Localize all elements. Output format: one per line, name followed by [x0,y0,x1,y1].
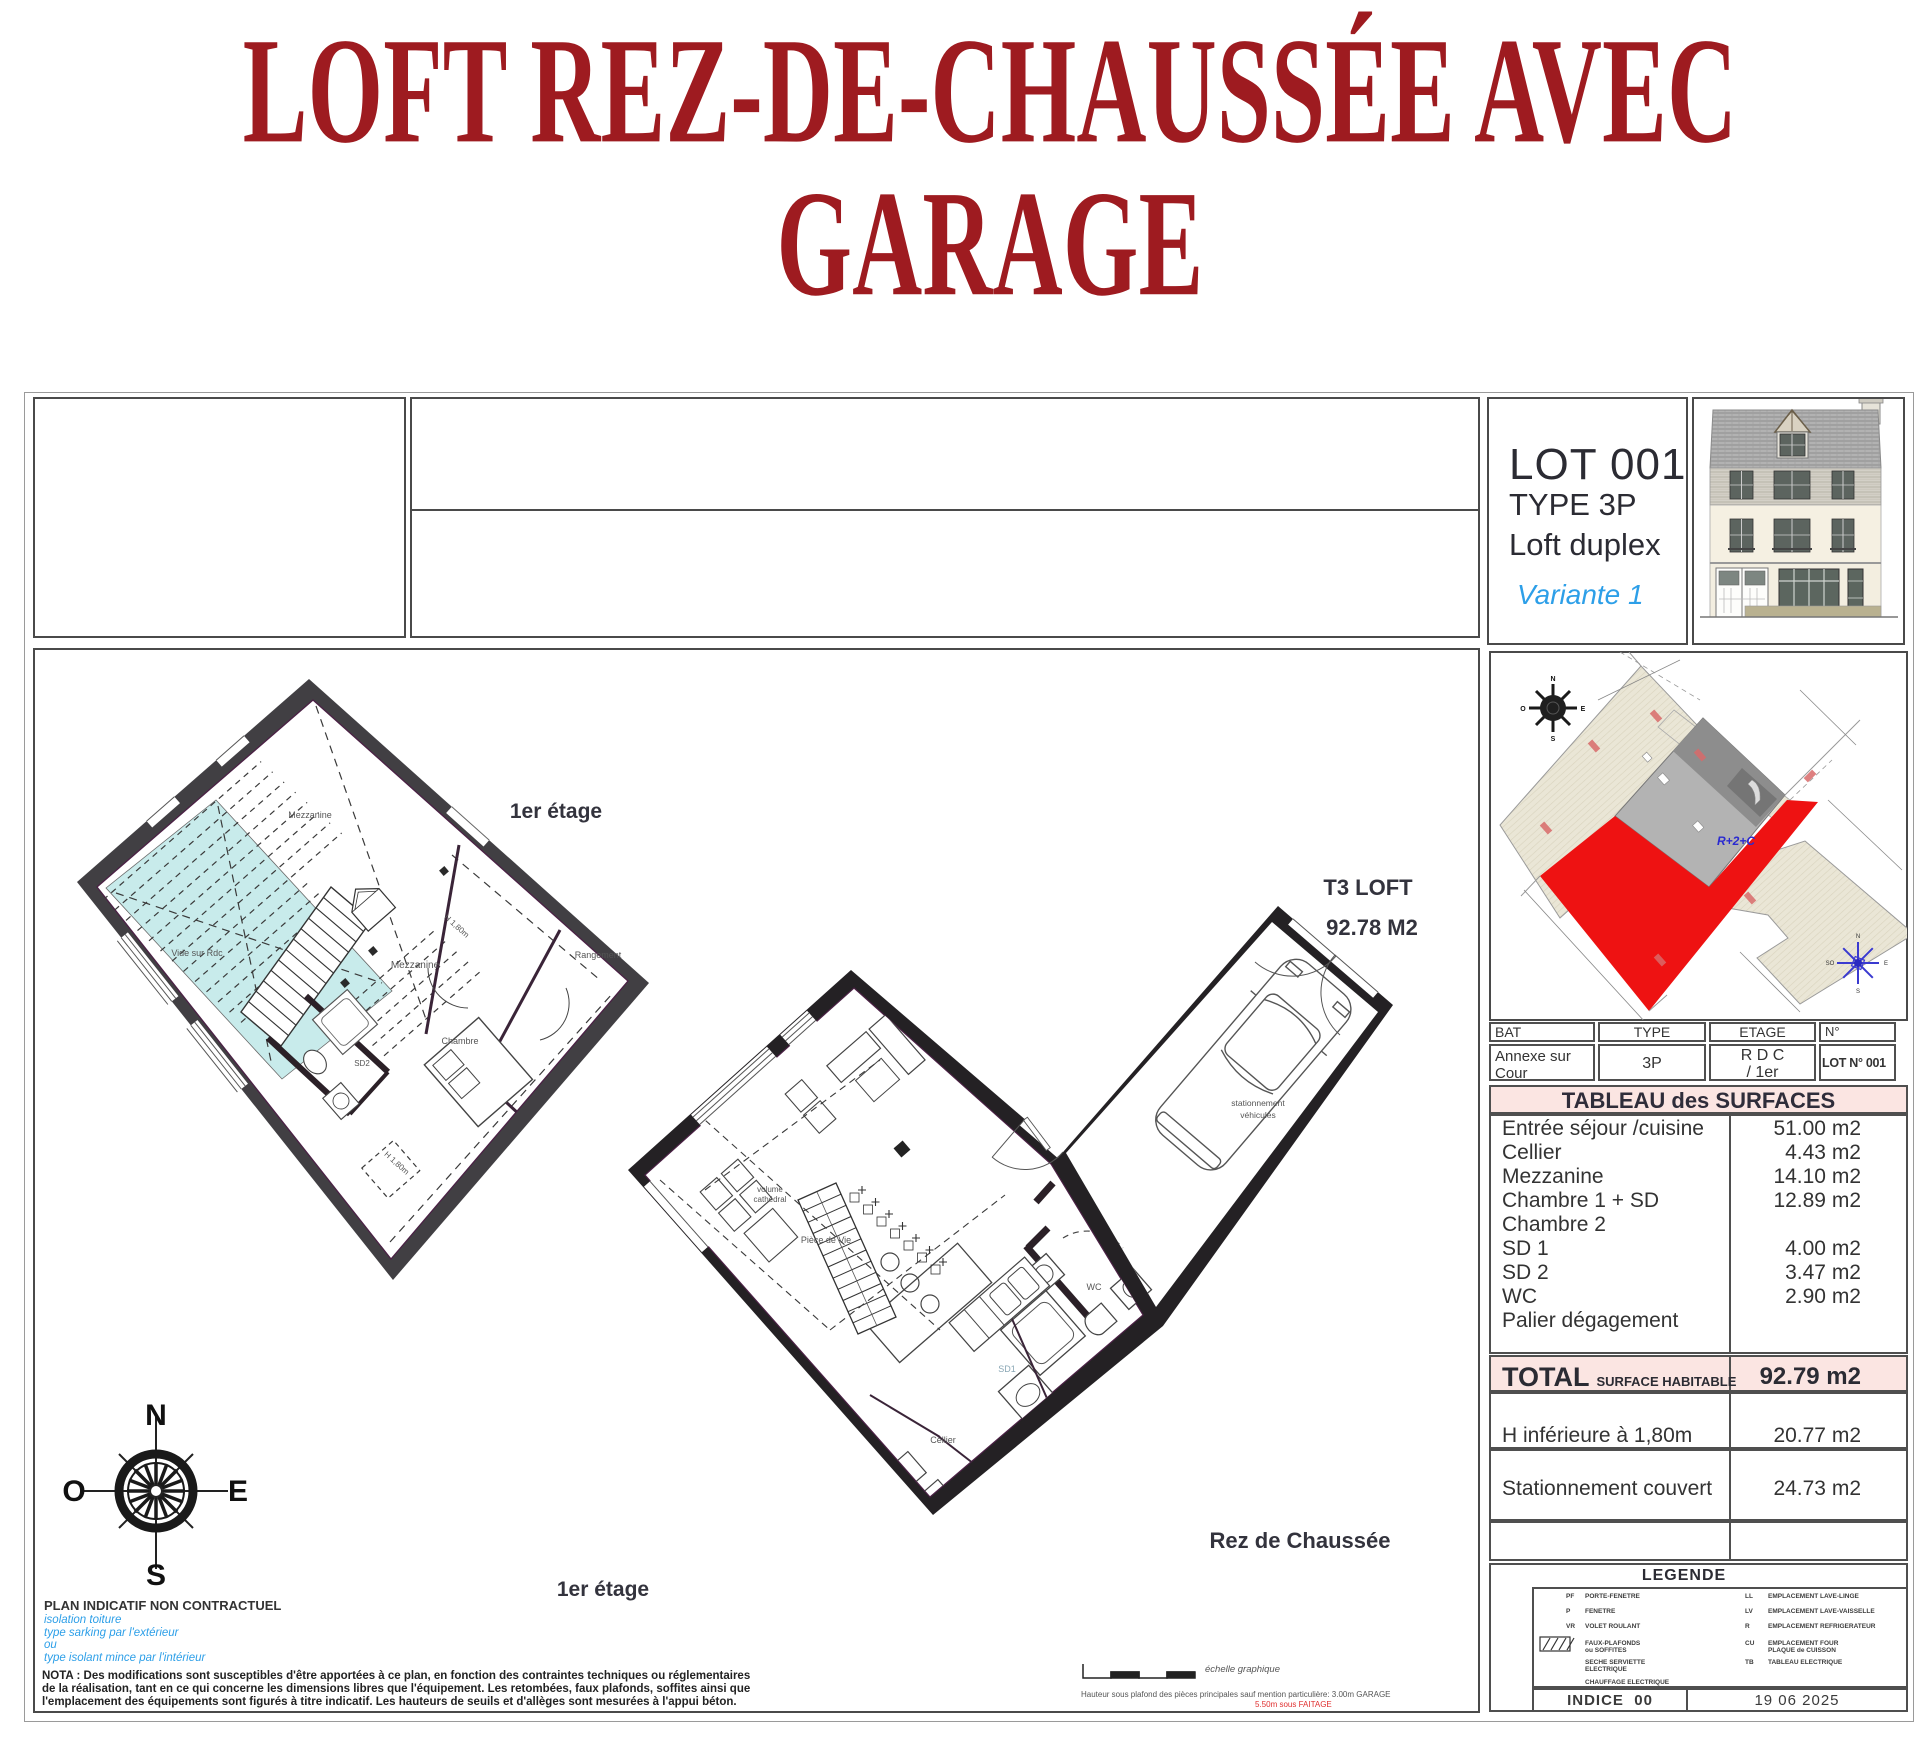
svg-text:PLAQUE de CUISSON: PLAQUE de CUISSON [1768,1647,1836,1654]
svg-text:CU: CU [1745,1640,1755,1647]
svg-text:ELECTRIQUE: ELECTRIQUE [1585,1666,1628,1673]
svg-text:EMPLACEMENT LAVE-VAISSELLE: EMPLACEMENT LAVE-VAISSELLE [1768,1608,1875,1615]
svg-text:EMPLACEMENT REFRIGERATEUR: EMPLACEMENT REFRIGERATEUR [1768,1623,1876,1630]
svg-text:TB: TB [1745,1659,1754,1666]
svg-text:EMPLACEMENT FOUR: EMPLACEMENT FOUR [1768,1640,1839,1647]
svg-text:PF: PF [1566,1593,1574,1600]
svg-text:R: R [1745,1623,1750,1630]
svg-text:P: P [1566,1608,1571,1615]
svg-text:CHAUFFAGE ELECTRIQUE: CHAUFFAGE ELECTRIQUE [1585,1679,1670,1686]
svg-text:SECHE SERVIETTE: SECHE SERVIETTE [1585,1659,1646,1666]
svg-text:VOLET ROULANT: VOLET ROULANT [1585,1623,1640,1630]
svg-text:LL: LL [1745,1593,1753,1600]
svg-text:LV: LV [1745,1608,1753,1615]
svg-text:EMPLACEMENT LAVE-LINGE: EMPLACEMENT LAVE-LINGE [1768,1593,1860,1600]
svg-text:TABLEAU ELECTRIQUE: TABLEAU ELECTRIQUE [1768,1659,1843,1666]
svg-text:FENETRE: FENETRE [1585,1608,1616,1615]
svg-text:PORTE-FENETRE: PORTE-FENETRE [1585,1593,1641,1600]
svg-text:ou SOFFITES: ou SOFFITES [1585,1647,1627,1654]
svg-text:FAUX-PLAFONDS: FAUX-PLAFONDS [1585,1640,1641,1647]
svg-text:VR: VR [1566,1623,1575,1630]
